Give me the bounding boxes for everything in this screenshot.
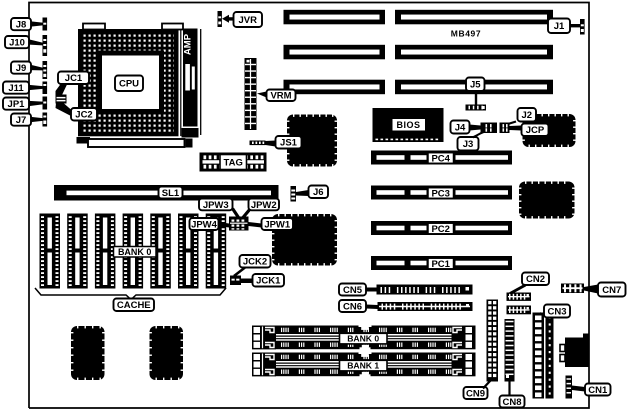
svg-text:PC3: PC3	[431, 189, 449, 200]
svg-text:BANK 1: BANK 1	[347, 361, 379, 371]
svg-text:TAG: TAG	[224, 158, 243, 169]
svg-text:CN2: CN2	[526, 274, 545, 285]
svg-text:J10: J10	[9, 38, 25, 49]
svg-text:JC2: JC2	[75, 110, 92, 121]
svg-text:BANK 0: BANK 0	[347, 334, 379, 344]
svg-text:JPW1: JPW1	[264, 219, 291, 230]
svg-text:MB497: MB497	[451, 29, 481, 39]
svg-text:J6: J6	[313, 187, 324, 198]
svg-text:SL1: SL1	[162, 188, 180, 199]
svg-text:JPW4: JPW4	[191, 219, 218, 230]
svg-text:CN9: CN9	[466, 388, 485, 399]
svg-text:CN6: CN6	[343, 301, 362, 312]
svg-text:JP1: JP1	[8, 99, 26, 110]
svg-text:JCK1: JCK1	[256, 276, 281, 287]
svg-text:J1: J1	[554, 21, 565, 32]
svg-text:J11: J11	[8, 83, 24, 94]
svg-text:J5: J5	[470, 80, 481, 91]
svg-text:CN3: CN3	[547, 306, 566, 317]
svg-text:VRM: VRM	[270, 91, 291, 102]
svg-text:BIOS: BIOS	[396, 120, 420, 130]
svg-text:J4: J4	[455, 122, 466, 133]
svg-text:J9: J9	[16, 63, 27, 74]
svg-text:JPW3: JPW3	[203, 200, 229, 211]
svg-text:JC1: JC1	[65, 73, 83, 84]
svg-text:J8: J8	[16, 20, 27, 31]
svg-text:J3: J3	[463, 139, 474, 150]
svg-text:J2: J2	[521, 110, 532, 121]
svg-text:JCK2: JCK2	[243, 257, 267, 268]
svg-text:CN5: CN5	[343, 285, 363, 296]
svg-text:PC2: PC2	[431, 224, 449, 235]
svg-text:J7: J7	[16, 115, 27, 126]
svg-text:BANK 0: BANK 0	[118, 247, 152, 257]
svg-text:JVR: JVR	[239, 15, 258, 26]
svg-text:CN1: CN1	[588, 385, 608, 396]
svg-text:JS1: JS1	[280, 138, 298, 149]
svg-text:PC1: PC1	[431, 259, 450, 270]
svg-text:CPU: CPU	[119, 79, 139, 90]
svg-text:CN8: CN8	[502, 397, 521, 408]
svg-text:JPW2: JPW2	[251, 200, 277, 211]
svg-text:CN7: CN7	[602, 285, 621, 296]
svg-text:AMP: AMP	[183, 33, 194, 55]
svg-text:JCP: JCP	[526, 125, 545, 136]
svg-text:CACHE: CACHE	[117, 300, 151, 311]
svg-text:PC4: PC4	[431, 154, 450, 165]
